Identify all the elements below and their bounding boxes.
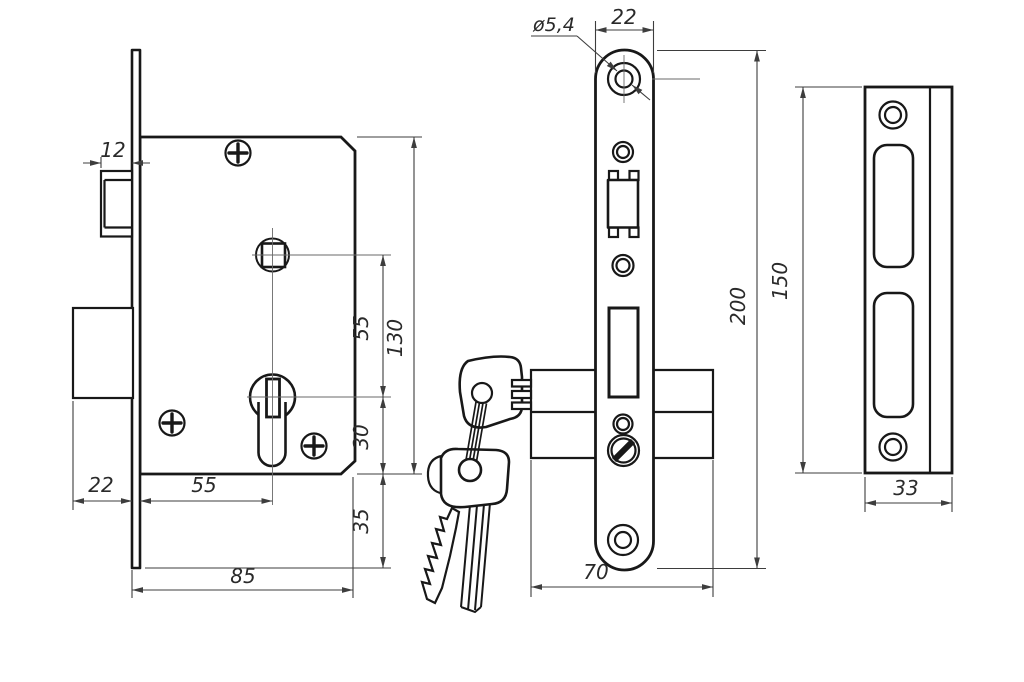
key-bits <box>512 380 531 409</box>
screw-icon <box>302 434 327 459</box>
dim-strike-width: 33 <box>893 476 918 500</box>
latch-bolt <box>101 171 132 237</box>
front-view: 22 ø5,4 200 70 <box>422 5 766 612</box>
screw-hole <box>880 102 907 129</box>
drawing-canvas: 12 22 55 85 55 30 35 130 <box>0 0 1024 682</box>
dim-hole-diameter: ø5,4 <box>532 14 575 36</box>
screw-hole <box>608 525 638 555</box>
key-blade-serrated <box>422 508 459 603</box>
dim-cylinder-to-edge: 30 <box>349 424 373 449</box>
dim-bolt-throw: 22 <box>88 473 113 497</box>
dim-body-height: 130 <box>383 319 407 357</box>
dim-latch-depth: 12 <box>100 138 125 162</box>
dim-backset: 55 <box>191 473 216 497</box>
front-view-dimensions: 22 ø5,4 200 70 <box>531 5 766 597</box>
side-view: 12 22 55 85 55 30 35 130 <box>73 50 422 598</box>
strike-view-dimensions: 150 33 <box>768 87 952 512</box>
keys <box>422 357 531 613</box>
fixing-hole <box>613 142 633 162</box>
key-bow-hole <box>472 383 492 403</box>
latch-opening <box>874 145 913 267</box>
dim-hub-to-cylinder: 55 <box>349 315 373 340</box>
screw-hole <box>880 434 907 461</box>
deadbolt-opening <box>874 293 913 417</box>
dim-plate-overhang: 35 <box>349 508 373 533</box>
screw-icon <box>226 141 251 166</box>
screw-icon <box>160 411 185 436</box>
dim-plate-width: 22 <box>611 5 636 29</box>
strike-plate-view: 150 33 <box>768 87 952 512</box>
technical-drawing-mortise-lock: 12 22 55 85 55 30 35 130 <box>0 0 1024 682</box>
dim-body-length: 70 <box>583 560 608 584</box>
key-bow-back <box>428 456 441 493</box>
key-ring <box>459 459 481 481</box>
keyway-slot <box>267 379 280 417</box>
fixing-hole <box>613 255 634 276</box>
dim-plate-height: 200 <box>726 287 750 325</box>
fixing-hole <box>614 415 633 434</box>
deadbolt-cutout <box>609 308 638 397</box>
latch-cutout <box>608 171 639 237</box>
key-blade-straight <box>461 503 490 612</box>
dim-strike-height: 150 <box>768 262 792 300</box>
deadbolt <box>73 308 133 398</box>
slotted-screw-icon <box>608 435 639 466</box>
